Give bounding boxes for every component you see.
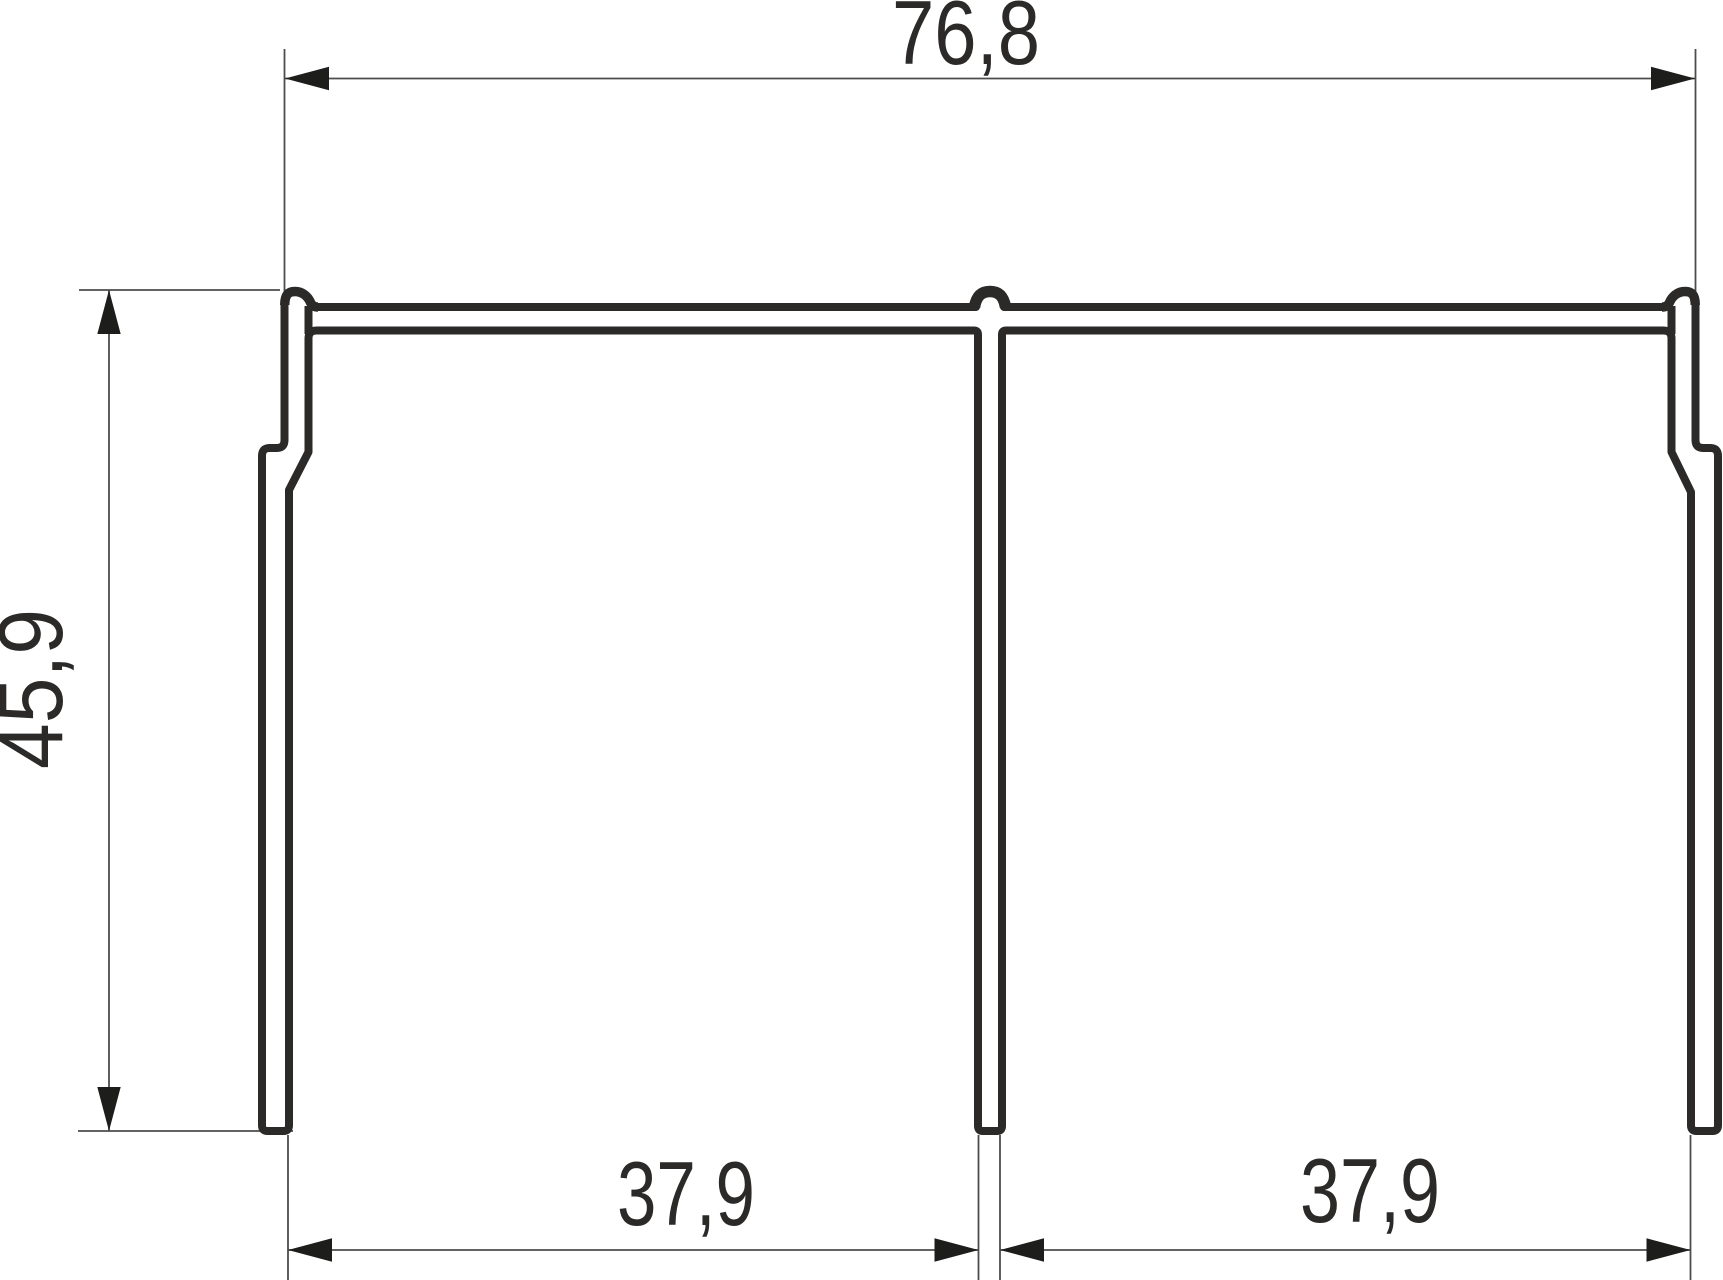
svg-text:45,9: 45,9 — [0, 609, 82, 769]
svg-text:37,9: 37,9 — [617, 1144, 755, 1245]
svg-text:76,8: 76,8 — [892, 0, 1040, 84]
svg-text:37,9: 37,9 — [1300, 1141, 1440, 1242]
